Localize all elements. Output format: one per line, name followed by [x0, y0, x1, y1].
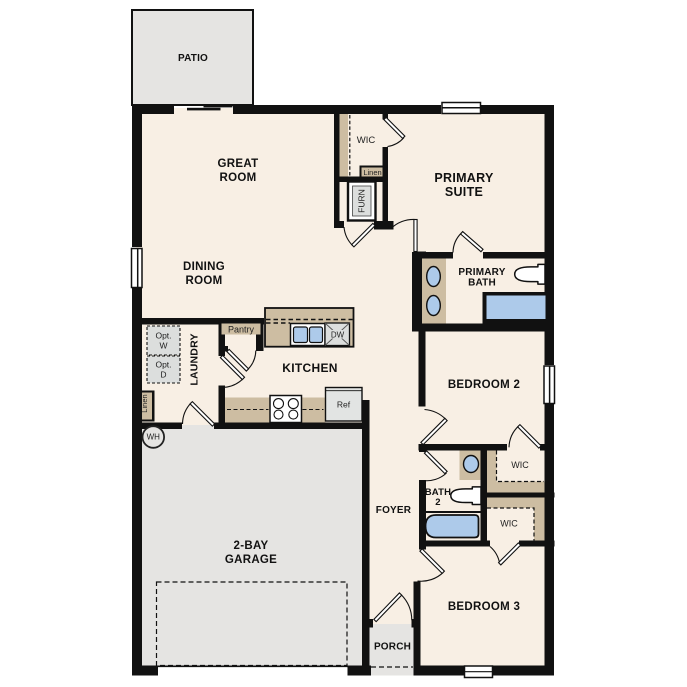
svg-text:BEDROOM 2: BEDROOM 2 — [448, 379, 520, 391]
svg-text:D: D — [160, 370, 166, 380]
svg-text:GARAGE: GARAGE — [225, 554, 277, 566]
svg-text:DW: DW — [331, 331, 345, 340]
svg-text:DINING: DINING — [183, 261, 225, 273]
svg-text:SUITE: SUITE — [445, 185, 483, 199]
svg-text:PRIMARY: PRIMARY — [434, 171, 494, 185]
svg-text:WIC: WIC — [500, 519, 518, 529]
svg-text:ROOM: ROOM — [220, 172, 257, 184]
svg-text:Opt.: Opt. — [155, 360, 171, 370]
svg-text:Ref: Ref — [337, 400, 351, 410]
svg-text:WH: WH — [147, 433, 161, 442]
svg-text:BATH: BATH — [468, 278, 496, 289]
svg-text:Pantry: Pantry — [228, 324, 255, 334]
svg-text:ROOM: ROOM — [186, 275, 223, 287]
svg-text:PORCH: PORCH — [374, 642, 411, 653]
svg-text:Linen: Linen — [140, 394, 149, 412]
svg-text:Opt.: Opt. — [155, 331, 171, 341]
svg-text:PRIMARY: PRIMARY — [458, 267, 505, 278]
svg-text:GREAT: GREAT — [218, 158, 259, 170]
svg-text:FOYER: FOYER — [376, 505, 412, 516]
svg-text:FURN: FURN — [357, 189, 367, 213]
svg-text:Linen: Linen — [363, 168, 381, 177]
svg-text:2: 2 — [435, 497, 440, 508]
svg-text:WIC: WIC — [357, 135, 376, 146]
svg-text:KITCHEN: KITCHEN — [282, 361, 337, 375]
svg-text:WIC: WIC — [511, 460, 529, 470]
svg-text:PATIO: PATIO — [178, 53, 208, 64]
svg-text:W: W — [159, 341, 167, 351]
svg-text:BEDROOM 3: BEDROOM 3 — [448, 601, 520, 613]
svg-text:LAUNDRY: LAUNDRY — [189, 333, 201, 385]
svg-text:2-BAY: 2-BAY — [234, 540, 269, 552]
